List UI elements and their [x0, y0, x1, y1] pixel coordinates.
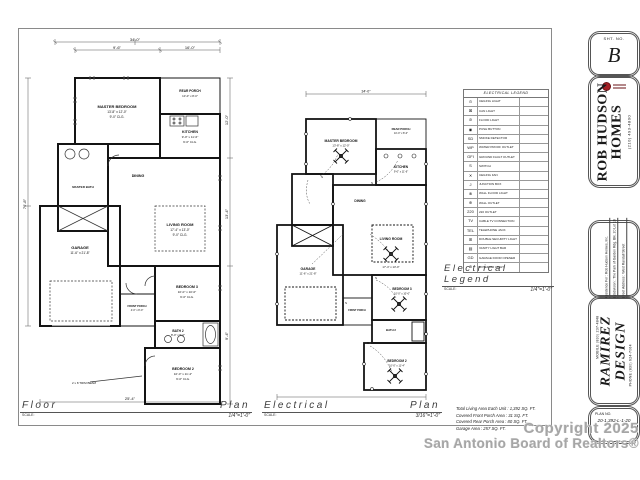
legend-row-label: DOUBLE SECURITY LIGHT [478, 236, 520, 244]
legend-row-blank [520, 227, 548, 235]
room-size: 10'-0" x 10'-0" [178, 290, 196, 294]
legend-row: WP WATER PROOF OUTLET [464, 144, 548, 153]
legend-row-blank [520, 126, 548, 134]
dim-label: 34'-0" [361, 90, 371, 94]
legend-symbol-icon: ✕ [464, 172, 478, 180]
legend-row-blank [520, 236, 548, 244]
electrical-legend-table: ELECTRICAL LEGEND ⊙ CEILING LIGHT ⊠ CAN … [463, 89, 549, 273]
room-size: 17'-4" x 13'-0" [170, 228, 190, 232]
room-size: 8'-0" x 5'-0" [171, 333, 185, 337]
legend-symbol-icon: ▤ [464, 245, 478, 253]
dim-label: 76'-8" [22, 198, 27, 209]
dim-label: 34'-0" [130, 37, 141, 42]
dim-label: 16'-0" [185, 45, 196, 50]
legend-row-label: WATER PROOF OUTLET [478, 144, 520, 152]
legend-symbol-icon: ⊘ [464, 116, 478, 124]
scale-value: 1/4"=1'-0" [228, 413, 250, 419]
door-swing [145, 276, 155, 286]
builder-name-line2: HOMES [611, 82, 625, 181]
legend-row: SD SMOKE DETECTOR [464, 135, 548, 144]
legend-row-label: PUSH BUTTON [478, 126, 520, 134]
watermark-organization: San Antonio Board of Realtors® [424, 437, 639, 451]
room-size: 17'-4" x 13'-0" [382, 265, 399, 269]
room-label-garage: GARAGE [301, 267, 317, 271]
dim-label: 12'-0" [224, 114, 229, 125]
room-label-bedroom-2: BEDROOM 2 [172, 367, 194, 371]
scale-value: 3/16"=1'-0" [416, 413, 440, 419]
note-leader [90, 376, 142, 382]
legend-symbol-icon: GFI [464, 153, 478, 161]
dim-label: 9'-4" [224, 331, 229, 340]
legend-row-label: CAN LIGHT [478, 107, 520, 115]
sheet-number-box: SHT. NO. B [590, 33, 638, 75]
legend-row: J JUNCTION BOX [464, 181, 548, 190]
legend-row: GFI GROUND FAULT OUTLET [464, 153, 548, 162]
room-size: 10'-0" x 8'-0" [394, 132, 408, 135]
legend-row-blank [520, 107, 548, 115]
can-light-icon [412, 154, 416, 158]
watermark: Copyright 2025 San Antonio Board of Real… [424, 421, 639, 451]
room-label-master-bedroom: MASTER BEDROOM [98, 104, 138, 109]
legend-row-label: GARAGE DOOR OPENER [478, 254, 520, 262]
legend-row-label: CEILING FAN [478, 172, 520, 180]
sink-icon [186, 116, 198, 126]
electrical-heading-word1: Electrical [264, 400, 330, 411]
legend-row-blank [520, 245, 548, 253]
room-label-kitchen: KITCHEN [182, 130, 198, 134]
room-size: 9'-0" x 11'-6" [394, 170, 408, 174]
legend-row-blank [520, 190, 548, 198]
ceiling-fan-icon [388, 369, 403, 384]
plan-number-label: PLAN NO. [595, 412, 637, 416]
electrical-walls [277, 119, 426, 390]
legend-row-blank [520, 162, 548, 170]
builder-name-line1: ROB HUDSON [597, 82, 611, 181]
room-clg: 9'-0" CLG. [176, 377, 190, 381]
legend-row-blank [520, 116, 548, 124]
scale-label: SCALE: [264, 413, 276, 419]
legend-row: ⊙ CEILING LIGHT [464, 98, 548, 107]
designer-name-rotated: MOBILE (830) 237-4848 RAMIREZ DESIGN PHO… [595, 316, 632, 387]
room-size: 13'-8" x 12'-0" [107, 110, 127, 114]
floor-dimension-lines [25, 39, 233, 405]
room-size: 10'-0" x 11'-4" [389, 364, 405, 368]
switch-wiring-arcs [306, 154, 398, 372]
room-label-front-porch: FRONT PORCH [127, 304, 146, 308]
legend-row-label: CEILING LIGHT [478, 98, 520, 106]
room-clg: 9'-0" CLG. [183, 140, 197, 144]
legend-row-label: TELEPHONE JACK [478, 227, 520, 235]
legend-row: TV CABLE TV CONNECTION [464, 217, 548, 226]
builder-name-rotated: ROB HUDSON HOMES (210) 493-4800 [597, 82, 632, 181]
room-label-bedroom-3: BEDROOM 3 [392, 287, 412, 291]
legend-row-label: CABLE TV CONNECTION [478, 217, 520, 225]
garage-slab-dashed [50, 281, 112, 321]
legend-row: ⊘ FLOOD LIGHT [464, 116, 548, 125]
dryer-icon [79, 149, 89, 159]
room-label-master-bedroom: MASTER BEDROOM [325, 139, 358, 143]
legend-row-blank [520, 199, 548, 207]
room-size: 11'-6" x 21'-8" [70, 251, 89, 255]
legend-symbol-icon: 220 [464, 208, 478, 216]
legend-table-title: ELECTRICAL LEGEND [464, 90, 548, 98]
legend-symbol-icon: SD [464, 135, 478, 143]
washer-icon [65, 149, 75, 159]
room-clg: 9'-0" CLG. [180, 295, 194, 299]
legend-row-label: JUNCTION BOX [478, 181, 520, 189]
range-icon [170, 116, 184, 126]
floor-light-walls [120, 78, 220, 326]
room-size: 11'-6" x 21'-8" [300, 272, 317, 276]
room-label-garage: GARAGE [71, 245, 89, 250]
room-label-living-room: LIVING ROOM [167, 222, 195, 227]
project-address-line: Street Address : West Randall Street [621, 218, 627, 300]
legend-symbol-icon: ⊠ [464, 107, 478, 115]
outlet-symbols [276, 118, 428, 391]
room-label-bedroom-3: BEDROOM 3 [176, 285, 198, 289]
floor-heading-word1: Floor [22, 400, 57, 411]
legend-row-blank [520, 153, 548, 161]
trim-beam-note: 2 x 8 TRIM BEAM [72, 381, 96, 385]
room-label-dining: DINING [132, 174, 145, 178]
room-size: 10'-0" x 8'-0" [182, 94, 198, 98]
room-label-rear-porch: REAR PORCH [392, 127, 411, 131]
legend-heading-text: Electrical Legend [444, 263, 552, 285]
floor-plan-heading: Floor Plan SCALE: 1/4"=1'-0" [20, 400, 252, 419]
room-label-master-bath: MASTER BATH [72, 185, 94, 189]
legend-row-blank [520, 144, 548, 152]
floor-plan-drawing: 34'-0" 9'-6" 16'-0" 76'-8" 12'-0" 13'-4"… [20, 36, 252, 408]
legend-row-blank [520, 254, 548, 262]
door-swing [126, 283, 137, 294]
legend-heading: Electrical Legend SCALE: 1/4"=1'-0" [442, 263, 554, 293]
legend-symbol-icon: GD [464, 254, 478, 262]
floor-walls [40, 78, 220, 404]
switch-letters: SSS SS [321, 175, 377, 345]
legend-symbol-icon: ⊗ [464, 190, 478, 198]
closet-cross [58, 206, 108, 231]
svg-text:S: S [371, 181, 373, 185]
blueprint-sheet: 34'-0" 9'-6" 16'-0" 76'-8" 12'-0" 13'-4"… [0, 0, 640, 480]
ceiling-fan-icon [334, 149, 349, 164]
builder-box: ROB HUDSON HOMES (210) 493-4800 [590, 77, 638, 186]
floor-heading-word2: Plan [220, 400, 250, 411]
room-clg: 9'-0" CLG. [110, 115, 125, 119]
designer-name-line2: DESIGN [614, 316, 629, 387]
svg-text:S: S [345, 301, 347, 305]
electrical-plan-heading: Electrical Plan SCALE: 3/16"=1'-0" [262, 400, 442, 419]
ceiling-fan-icon [384, 247, 399, 262]
legend-row: ✕ CEILING FAN [464, 172, 548, 181]
legend-row: TEL TELEPHONE JACK [464, 227, 548, 236]
legend-row-blank [520, 217, 548, 225]
project-subdivision-line: Subdivision : The Park of Garden Rdg. Bl… [612, 218, 618, 300]
svg-text:S: S [367, 341, 369, 345]
room-label-living-room: LIVING ROOM [380, 237, 403, 241]
legend-symbol-icon: ⊞ [464, 236, 478, 244]
legend-symbol-icon: WP [464, 144, 478, 152]
legend-symbol-icon: S [464, 162, 478, 170]
designer-name-line1: RAMIREZ [599, 316, 614, 387]
designer-phone: PHONE (830) 624-7064 [629, 316, 633, 387]
scale-label: SCALE: [22, 413, 34, 419]
legend-row: ▤ VANITY LIGHT BAR [464, 245, 548, 254]
room-size: 4'-0" x 8'-0" [131, 309, 144, 312]
project-info-rotated: Residence For : Rob Hudson Homes, Inc. S… [601, 218, 627, 300]
room-size: 10'-0" x 11'-4" [174, 372, 192, 376]
legend-symbol-icon: ⊙ [464, 98, 478, 106]
legend-row: S SWITCH [464, 162, 548, 171]
door-swing [108, 155, 119, 166]
door-swing [145, 356, 155, 366]
room-label-kitchen: KITCHEN [394, 165, 409, 169]
electrical-room-labels: MASTER BEDROOM 13'-8" x 12'-0" REAR PORC… [300, 127, 412, 368]
ceiling-fan-icon [392, 297, 407, 312]
legend-symbol-icon: TEL [464, 227, 478, 235]
legend-row-blank [520, 135, 548, 143]
sheet-number-value: B [591, 41, 637, 70]
legend-symbol-icon: J [464, 181, 478, 189]
room-label-front-porch: FRONT PORCH [348, 309, 366, 312]
room-size: 10'-0" x 10'-0" [394, 292, 410, 296]
can-light-icon [398, 154, 402, 158]
legend-row-blank [520, 181, 548, 189]
dim-label: 13'-4" [224, 208, 229, 219]
legend-row: ⊗ WALL FLOOD LIGHT [464, 190, 548, 199]
room-label-bath-2: BATH 2 [386, 328, 396, 332]
legend-row-blank [520, 98, 548, 106]
room-clg: 9'-0" CLG. [173, 233, 188, 237]
legend-row: ⊕ WALL OUTLET [464, 199, 548, 208]
legend-row-blank [520, 208, 548, 216]
legend-row: GD GARAGE DOOR OPENER [464, 254, 548, 263]
designer-box: MOBILE (830) 237-4848 RAMIREZ DESIGN PHO… [590, 298, 638, 404]
legend-row: ⊠ CAN LIGHT [464, 107, 548, 116]
floor-room-labels: MASTER BEDROOM 13'-8" x 12'-0" 9'-0" CLG… [70, 89, 201, 385]
legend-row-label: WALL OUTLET [478, 199, 520, 207]
legend-row: ⊞ DOUBLE SECURITY LIGHT [464, 236, 548, 245]
room-label-dining: DINING [354, 199, 366, 203]
legend-symbol-icon: TV [464, 217, 478, 225]
legend-row-label: SMOKE DETECTOR [478, 135, 520, 143]
legend-row-label: SWITCH [478, 162, 520, 170]
room-label-bedroom-2: BEDROOM 2 [387, 359, 407, 363]
legend-row-label: WALL FLOOD LIGHT [478, 190, 520, 198]
room-label-rear-porch: REAR PORCH [179, 89, 201, 93]
room-size: 9'-0" x 11'-6" [182, 135, 199, 139]
legend-row-label: 220 OUTLET [478, 208, 520, 216]
dim-label: 9'-6" [113, 45, 122, 50]
scale-value: 1/4"=1'-0" [530, 287, 552, 293]
legend-row: 220 220 OUTLET [464, 208, 548, 217]
legend-row-label: VANITY LIGHT BAR [478, 245, 520, 253]
legend-row-label: GROUND FAULT OUTLET [478, 153, 520, 161]
project-residence-line: Residence For : Rob Hudson Homes, Inc. [604, 218, 610, 300]
project-info-box: Residence For : Rob Hudson Homes, Inc. S… [590, 222, 638, 296]
electrical-plan-drawing: 34'-0" [260, 84, 452, 406]
svg-text:S: S [375, 276, 377, 280]
builder-phone: (210) 493-4800 [626, 82, 631, 181]
legend-row: ◉ PUSH BUTTON [464, 126, 548, 135]
watermark-copyright: Copyright 2025 [424, 421, 639, 437]
legend-symbol-icon: ◉ [464, 126, 478, 134]
legend-rows: ⊙ CEILING LIGHT ⊠ CAN LIGHT ⊘ FLOOD LIGH… [464, 98, 548, 272]
legend-row-label: FLOOD LIGHT [478, 116, 520, 124]
legend-symbol-icon: ⊕ [464, 199, 478, 207]
room-size: 13'-8" x 12'-0" [332, 144, 349, 148]
can-light-icon [384, 154, 388, 158]
legend-row-blank [520, 172, 548, 180]
svg-text:S: S [321, 175, 323, 179]
scale-label: SCALE: [444, 287, 456, 293]
electrical-heading-word2: Plan [410, 400, 440, 411]
